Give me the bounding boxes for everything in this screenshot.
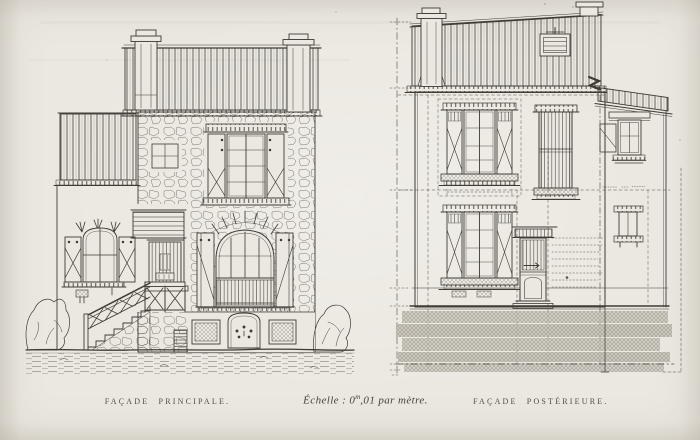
annex-upper-window	[612, 120, 646, 163]
facade-posterieure-drawing	[390, 2, 681, 375]
rear-left-chimney	[417, 8, 446, 87]
rear-first-floor-window	[439, 103, 520, 186]
scale-text: Échelle : 0	[303, 395, 355, 407]
ground-halftone	[396, 311, 672, 372]
facade-principale-drawing	[26, 30, 354, 374]
right-chimney	[283, 34, 314, 112]
caption-facade-principale: FAÇADE PRINCIPALE.	[100, 397, 235, 406]
left-chimney	[131, 30, 161, 110]
entrance-porch	[131, 204, 188, 312]
plate-page: FAÇADE PRINCIPALE. Échelle : 0m,01 par m…	[0, 0, 700, 440]
first-floor-window	[201, 122, 291, 206]
scale-text-suffix: ,01 par mètre.	[360, 395, 428, 407]
entrance-door	[149, 242, 181, 286]
small-stone-window	[148, 140, 182, 172]
ground-left	[26, 349, 354, 374]
annex-roof-cladding	[60, 114, 136, 180]
cellar-door	[228, 313, 260, 348]
basement	[174, 312, 315, 352]
rear-door	[512, 227, 557, 309]
rear-ground-floor-window	[439, 205, 520, 297]
annex-roof	[598, 88, 668, 112]
caption-scale: Échelle : 0m,01 par mètre.	[288, 393, 443, 407]
caption-facade-posterieure: FAÇADE POSTÉRIEURE.	[473, 397, 608, 406]
rear-annex	[589, 77, 672, 307]
rear-center-window	[532, 105, 580, 200]
architectural-plate-drawing	[0, 0, 700, 440]
bush-left	[26, 299, 70, 350]
annex-lower-window	[614, 206, 643, 247]
rear-right-chimney	[576, 2, 603, 16]
annex-window	[62, 219, 135, 303]
basement-window-right	[269, 320, 296, 344]
basement-window-left	[192, 320, 220, 344]
bush-right	[313, 305, 350, 352]
hidden-stair-dotted-rows	[552, 238, 604, 287]
faded-annotation	[603, 187, 645, 188]
brick-pier	[174, 330, 187, 352]
